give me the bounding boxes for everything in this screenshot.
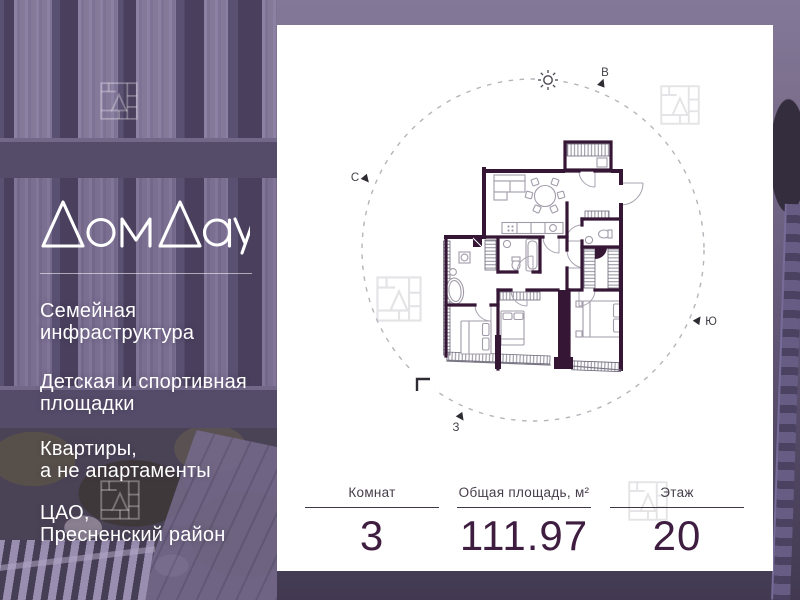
brand-block — [40, 197, 272, 255]
compass-label-west: З — [453, 422, 460, 434]
divider-line — [40, 273, 252, 274]
corner-mark — [410, 371, 434, 395]
compass-arrow-south — [693, 314, 704, 325]
floor-plan: С В Ю З — [277, 25, 773, 485]
domdau-logo — [40, 197, 250, 255]
compass-label-south: Ю — [705, 316, 717, 328]
feature-list: Семейная инфраструктура Детская и спорти… — [40, 300, 276, 546]
stat-floor: Этаж 20 — [610, 485, 744, 560]
feature-playgrounds: Детская и спортивная площадки — [40, 371, 276, 415]
stat-area-label: Общая площадь, м² — [457, 485, 591, 508]
stat-floor-label: Этаж — [610, 485, 744, 508]
stat-rooms-label: Комнат — [305, 485, 439, 508]
compass-arrow-north — [361, 174, 372, 185]
brand-watermark-icon — [100, 82, 138, 120]
stats-row: Комнат 3 Общая площадь, м² 111.97 Этаж 2… — [277, 485, 773, 571]
feature-family-infrastructure: Семейная инфраструктура — [40, 300, 276, 344]
compass-label-east: В — [601, 67, 609, 79]
stat-floor-value: 20 — [610, 512, 744, 560]
stat-rooms: Комнат 3 — [305, 485, 439, 560]
stat-area-value: 111.97 — [457, 512, 591, 560]
sun-icon — [537, 69, 559, 91]
feature-apartments: Квартиры, а не апартаменты — [40, 438, 276, 482]
floorplan-card: С В Ю З — [277, 25, 773, 571]
stat-rooms-value: 3 — [305, 512, 439, 560]
feature-district: ЦАО, Пресненский район — [40, 502, 276, 546]
ad-banner: Семейная инфраструктура Детская и спорти… — [0, 0, 800, 600]
stat-area: Общая площадь, м² 111.97 — [457, 485, 591, 560]
compass-label-north: С — [351, 172, 359, 184]
